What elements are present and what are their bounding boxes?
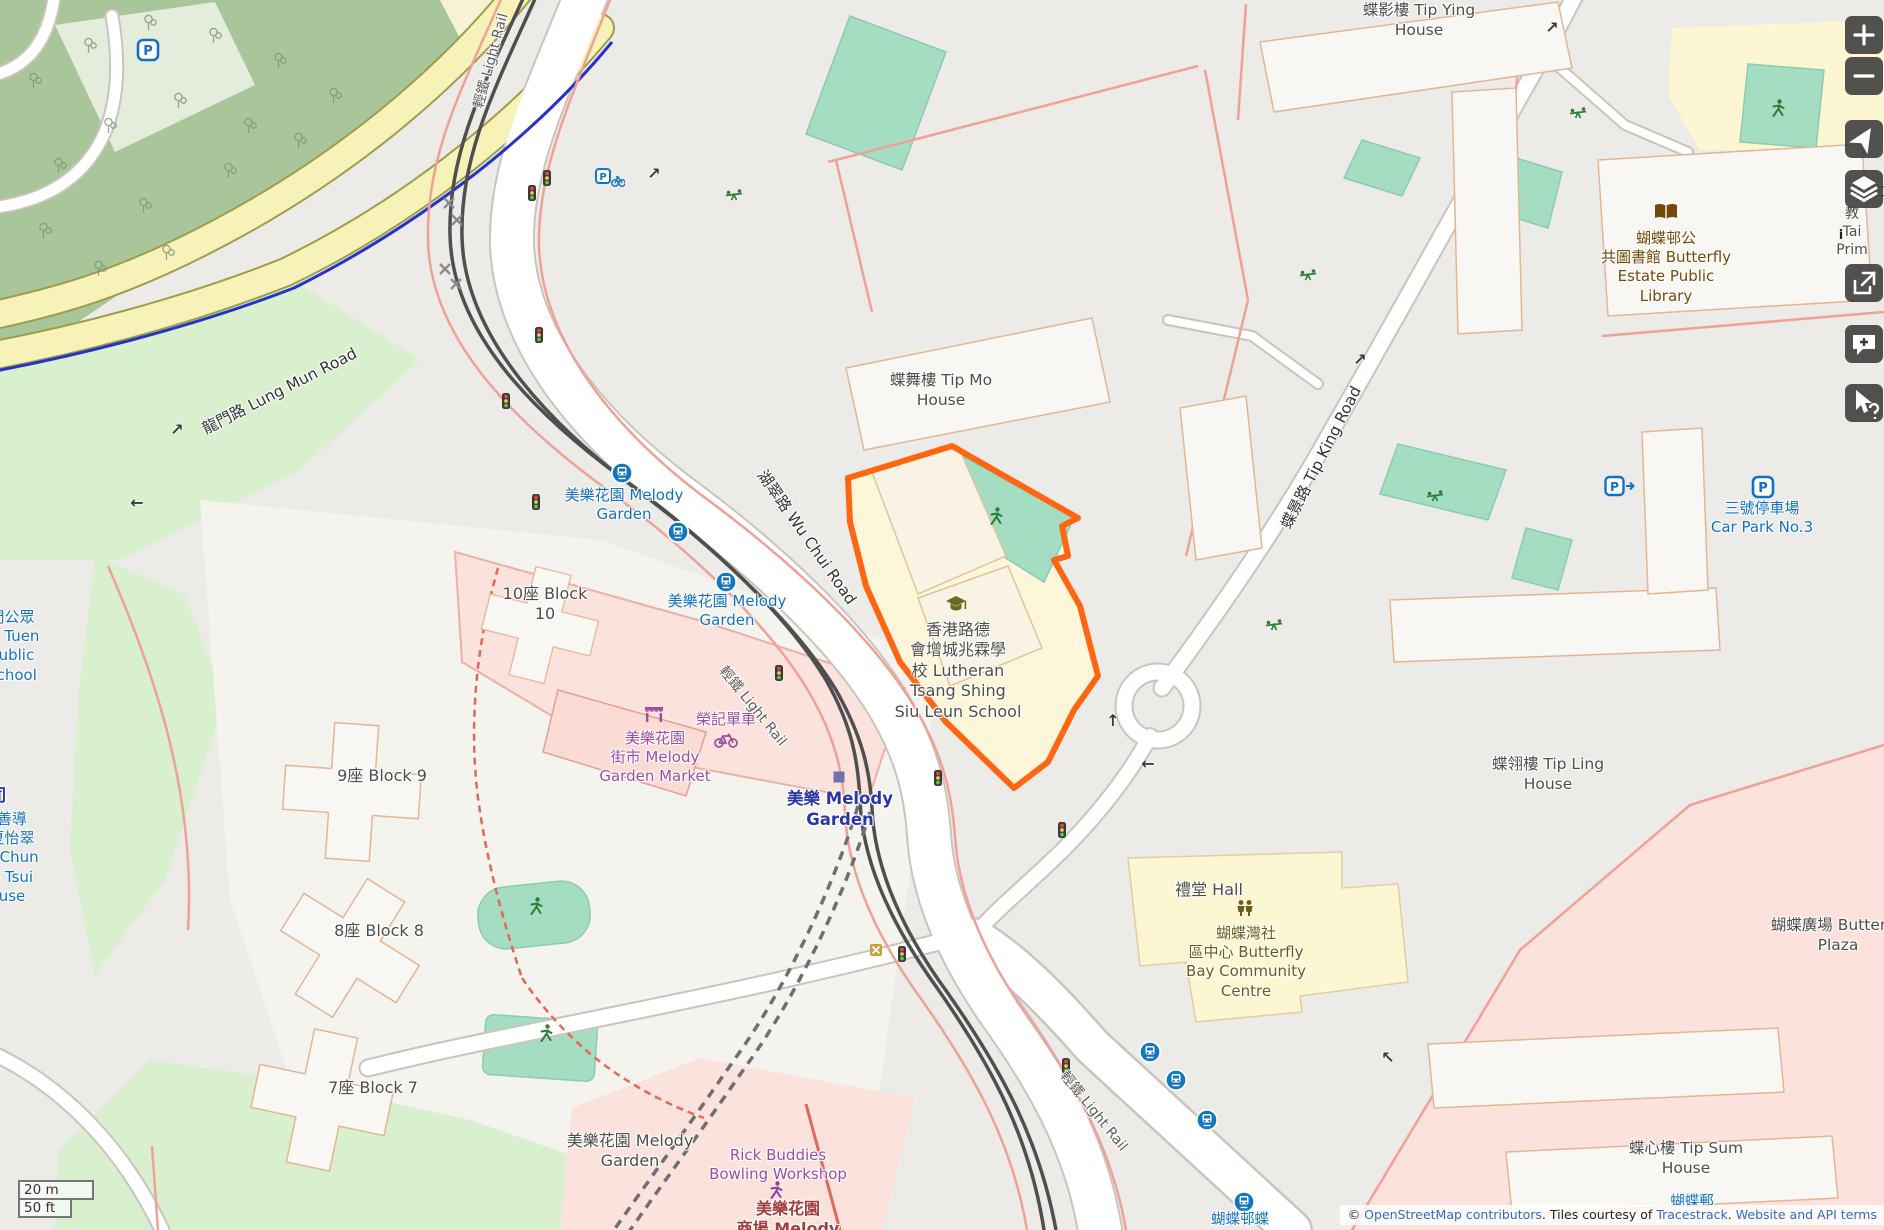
tree-icon — [52, 156, 68, 174]
tree-icon — [222, 161, 238, 179]
attribution-sep: . — [1728, 1207, 1736, 1222]
lbl-cut-house-line-3: e Tsui — [0, 868, 39, 887]
lbl-melody-garden-res-line-1: Garden — [567, 1151, 694, 1171]
lbl-melody-stop-north: 美樂花園 MelodyGarden — [565, 486, 684, 524]
lbl-library-line-3: Library — [1601, 287, 1731, 306]
lbl-library: 蝴蝶邨公共圖書館 ButterflyEstate PublicLibrary — [1601, 229, 1731, 306]
arrow-icon: ← — [1141, 756, 1154, 772]
lbl-community-centre-line-0: 蝴蝶灣社 — [1186, 924, 1306, 943]
lbl-cut-tuen-school: 門公眾校 TuenPublicSchool — [0, 608, 39, 685]
lbl-block-10-line-0: 10座 Block — [503, 584, 588, 604]
traffic-signal-icon — [898, 946, 907, 963]
attribution-bar: © OpenStreetMap contributors. Tiles cour… — [1340, 1205, 1884, 1225]
lbl-cut-station: 司 — [0, 786, 7, 808]
locate-button[interactable] — [1845, 120, 1883, 158]
minus-icon — [1845, 57, 1883, 95]
share-icon — [1845, 264, 1883, 302]
lbl-car-park-3: 三號停車場Car Park No.3 — [1711, 499, 1813, 537]
lbl-bowling-line-1: Bowling Workshop — [709, 1165, 847, 1184]
cross-mark-icon — [439, 263, 452, 276]
plus-icon — [1845, 16, 1883, 54]
lbl-cut-house: 善導夏怡翠n Chune Tsuiuse — [0, 810, 39, 906]
navigation-arrow-icon — [1845, 120, 1883, 158]
tree-icon — [272, 51, 288, 69]
playground-icon — [1263, 618, 1285, 634]
lbl-market: 美樂花園街市 MelodyGarden Market — [599, 729, 710, 787]
lbl-tip-ying-house-line-1: House — [1363, 21, 1475, 41]
lbl-cut-house-line-2: n Chun — [0, 848, 39, 867]
lbl-tip-mo-house: 蝶舞樓 Tip MoHouse — [890, 371, 992, 411]
person-green-icon — [1769, 98, 1787, 118]
lbl-melody-stop-south: 美樂花園 MelodyGarden — [668, 592, 787, 630]
tree-icon — [327, 86, 343, 104]
lbl-school-line-2: 校 Lutheran — [895, 661, 1022, 681]
tree-icon — [137, 196, 153, 214]
map-canvas[interactable]: PPPP↗←↗↑←↗↗↖ 蝶影樓 Tip YingHouse蝴蝶邨公共圖書館 B… — [0, 0, 1884, 1230]
traffic-signal-icon — [934, 770, 943, 787]
lbl-block-9-line-0: 9座 Block 9 — [337, 766, 427, 786]
lbl-car-park-3-line-1: Car Park No.3 — [1711, 518, 1813, 537]
traffic-signal-icon — [543, 170, 552, 187]
lbl-butterfly-plaza-line-0: 蝴蝶廣場 Butterfly — [1771, 916, 1884, 936]
lbl-melody-station-line-0: 美樂 Melody — [787, 788, 893, 809]
lbl-library-line-0: 蝴蝶邨公 — [1601, 229, 1731, 248]
playground-icon — [1297, 268, 1319, 284]
tree-icon — [142, 13, 158, 31]
traffic-signal-icon — [775, 665, 784, 682]
lbl-melody-shopping-line-0: 美樂花園 — [737, 1199, 840, 1219]
arrow-icon: ↗ — [1545, 20, 1558, 36]
lbl-tip-ling-house-line-1: House — [1492, 775, 1604, 795]
lbl-block-10: 10座 Block10 — [503, 584, 588, 625]
cross-mark-icon — [451, 214, 464, 227]
lbl-melody-station-line-1: Garden — [787, 809, 893, 830]
svg-text:P: P — [599, 172, 606, 183]
tree-icon — [92, 259, 108, 277]
tree-icon — [160, 243, 176, 261]
school-icon — [944, 594, 968, 614]
scale-imperial: 50 ft — [18, 1200, 72, 1218]
tree-icon — [37, 221, 53, 239]
person-green-icon — [527, 896, 545, 916]
station-square-icon — [834, 772, 845, 783]
lbl-car-park-3-line-0: 三號停車場 — [1711, 499, 1813, 518]
lbl-block-9: 9座 Block 9 — [337, 766, 427, 786]
lbl-community-centre-line-1: 區中心 Butterfly — [1186, 943, 1306, 962]
add-note-button[interactable] — [1845, 325, 1883, 363]
lbl-bowling: Rick BuddiesBowling Workshop — [709, 1146, 847, 1184]
lbl-fragment-edge-line-0: 教 — [1836, 206, 1867, 224]
query-features-button[interactable] — [1845, 384, 1883, 422]
lbl-tip-sum-house-line-0: 蝶心樓 Tip Sum — [1629, 1139, 1743, 1159]
lbl-melody-garden-res: 美樂花園 MelodyGarden — [567, 1131, 694, 1172]
lbl-block-7: 7座 Block 7 — [328, 1078, 418, 1098]
tree-icon — [292, 131, 308, 149]
lbl-block-8: 8座 Block 8 — [334, 921, 424, 941]
tree-icon — [172, 91, 188, 109]
lbl-community-centre-line-3: Centre — [1186, 982, 1306, 1001]
arrow-icon: ↗ — [1353, 352, 1366, 368]
level-crossing-icon — [870, 944, 883, 957]
lbl-school-line-1: 會增城兆霖學 — [895, 640, 1022, 660]
lbl-market-line-1: 街市 Melody — [599, 748, 710, 767]
scale-metric: 20 m — [18, 1180, 94, 1200]
lbl-school-line-0: 香港路德 — [895, 620, 1022, 640]
lbl-melody-stop-north-line-1: Garden — [565, 505, 684, 524]
svg-text:P: P — [1610, 480, 1619, 494]
lbl-tip-sum-house: 蝶心樓 Tip SumHouse — [1629, 1139, 1743, 1179]
lbl-cut-station-line-0: 司 — [0, 786, 7, 808]
svg-text:P: P — [143, 44, 153, 59]
lbl-tip-ling-house: 蝶翎樓 Tip LingHouse — [1492, 755, 1604, 795]
parking-icon: P — [1752, 476, 1775, 499]
lbl-school-line-4: Siu Leun School — [895, 702, 1022, 722]
zoom-in-button[interactable] — [1845, 16, 1883, 54]
lbl-block-10-line-1: 10 — [503, 604, 588, 624]
tree-icon — [207, 26, 223, 44]
lbl-hall: 禮堂 Hall — [1175, 880, 1243, 900]
tree-icon — [102, 116, 118, 134]
query-cursor-icon — [1845, 384, 1883, 422]
share-button[interactable] — [1845, 264, 1883, 302]
lbl-tip-ying-house: 蝶影樓 Tip YingHouse — [1363, 1, 1475, 41]
terms-link[interactable]: Website and API terms — [1736, 1207, 1877, 1222]
playground-icon — [723, 188, 745, 204]
tram-stop-icon — [610, 461, 634, 485]
lbl-cut-house-line-0: 善導 — [0, 810, 39, 829]
parking-icon: P — [137, 39, 160, 62]
lbl-tip-ying-house-line-0: 蝶影樓 Tip Ying — [1363, 1, 1475, 21]
library-icon — [1654, 203, 1678, 221]
lbl-cut-tuen-school-line-3: School — [0, 666, 39, 685]
community-icon — [1234, 899, 1256, 917]
lbl-cut-tuen-school-line-1: 校 Tuen — [0, 627, 39, 646]
attribution-copyright: © — [1348, 1207, 1364, 1222]
lbl-fragment-info: i — [1839, 228, 1843, 245]
bike-parking-icon: P — [595, 168, 625, 188]
lbl-cut-house-line-1: 夏怡翠 — [0, 829, 39, 848]
lbl-cut-tuen-school-line-2: Public — [0, 646, 39, 665]
svg-text:P: P — [1758, 481, 1768, 496]
lbl-cut-tuen-school-line-0: 門公眾 — [0, 608, 39, 627]
parking-access-icon: P — [1604, 476, 1636, 499]
arrow-icon: ↖ — [1381, 1050, 1394, 1066]
lbl-melody-station: 美樂 MelodyGarden — [787, 788, 893, 830]
cross-mark-icon — [450, 278, 463, 291]
lbl-hall-line-0: 禮堂 Hall — [1175, 880, 1243, 900]
lbl-market-line-2: Garden Market — [599, 767, 710, 786]
map-geometry — [0, 0, 1884, 1230]
tram-stop-icon — [714, 570, 738, 594]
lbl-tip-sum-house-line-1: House — [1629, 1159, 1743, 1179]
lbl-library-line-1: 共圖書館 Butterfly — [1601, 248, 1731, 267]
lbl-melody-garden-res-line-0: 美樂花園 Melody — [567, 1131, 694, 1151]
lbl-market-line-0: 美樂花園 — [599, 729, 710, 748]
lbl-butterfly-plaza-line-1: Plaza — [1771, 936, 1884, 956]
lbl-tip-mo-house-line-0: 蝶舞樓 Tip Mo — [890, 371, 992, 391]
bus-stop-icon — [1138, 1040, 1162, 1064]
lbl-tip-ling-house-line-0: 蝶翎樓 Tip Ling — [1492, 755, 1604, 775]
arrow-icon: ← — [130, 495, 143, 511]
cross-mark-icon — [443, 197, 456, 210]
lbl-melody-stop-north-line-0: 美樂花園 Melody — [565, 486, 684, 505]
playground-icon — [1424, 489, 1446, 505]
lbl-melody-stop-south-line-0: 美樂花園 Melody — [668, 592, 787, 611]
lbl-melody-shopping: 美樂花園商場 Melody — [737, 1199, 840, 1230]
arrow-icon: ↑ — [1106, 713, 1119, 729]
lbl-cut-house-line-4: use — [0, 887, 39, 906]
lbl-community-centre: 蝴蝶灣社區中心 ButterflyBay CommunityCentre — [1186, 924, 1306, 1001]
person-green-icon — [537, 1023, 555, 1043]
lbl-melody-stop-south-line-1: Garden — [668, 611, 787, 630]
lbl-fragment-info-line-0: i — [1839, 228, 1843, 245]
lbl-butterfly-plaza: 蝴蝶廣場 ButterflyPlaza — [1771, 916, 1884, 956]
arrow-icon: ↗ — [170, 422, 183, 438]
tree-icon — [82, 36, 98, 54]
osm-contributors-link[interactable]: OpenStreetMap contributors — [1364, 1207, 1542, 1222]
layers-button[interactable] — [1845, 170, 1883, 208]
tree-icon — [27, 71, 43, 89]
bicycle-icon — [714, 732, 738, 748]
market-icon — [643, 705, 665, 723]
zoom-out-button[interactable] — [1845, 57, 1883, 95]
person-green-icon — [987, 506, 1005, 526]
traffic-signal-icon — [1058, 822, 1067, 839]
bus-stop-icon — [1195, 1108, 1219, 1132]
playground-icon — [1567, 106, 1589, 122]
lbl-library-line-2: Estate Public — [1601, 267, 1731, 286]
tree-icon — [242, 116, 258, 134]
traffic-signal-icon — [532, 494, 541, 511]
lbl-melody-shopping-line-1: 商場 Melody — [737, 1219, 840, 1230]
lbl-block-7-line-0: 7座 Block 7 — [328, 1078, 418, 1098]
lbl-school: 香港路德會增城兆霖學校 LutheranTsang ShingSiu Leun … — [895, 620, 1022, 722]
traffic-signal-icon — [502, 393, 511, 410]
traffic-signal-icon — [535, 327, 544, 344]
bus-stop-icon — [1164, 1068, 1188, 1092]
lbl-tip-mo-house-line-1: House — [890, 391, 992, 411]
lbl-bowling-line-0: Rick Buddies — [709, 1146, 847, 1165]
lbl-block-8-line-0: 8座 Block 8 — [334, 921, 424, 941]
attribution-middle: . Tiles courtesy of — [1542, 1207, 1656, 1222]
scale-control: 20 m 50 ft — [18, 1180, 94, 1218]
lbl-cut-stop-south: 蝴蝶邨蝶 — [1211, 1211, 1269, 1230]
lbl-cut-stop-south-line-0: 蝴蝶邨蝶 — [1211, 1211, 1269, 1230]
tracestrack-link[interactable]: Tracestrack — [1656, 1207, 1727, 1222]
traffic-signal-icon — [528, 185, 537, 202]
note-bubble-icon — [1845, 325, 1883, 363]
arrow-icon: ↗ — [647, 166, 660, 182]
layers-icon — [1845, 170, 1883, 208]
lbl-community-centre-line-2: Bay Community — [1186, 962, 1306, 981]
lbl-school-line-3: Tsang Shing — [895, 681, 1022, 701]
